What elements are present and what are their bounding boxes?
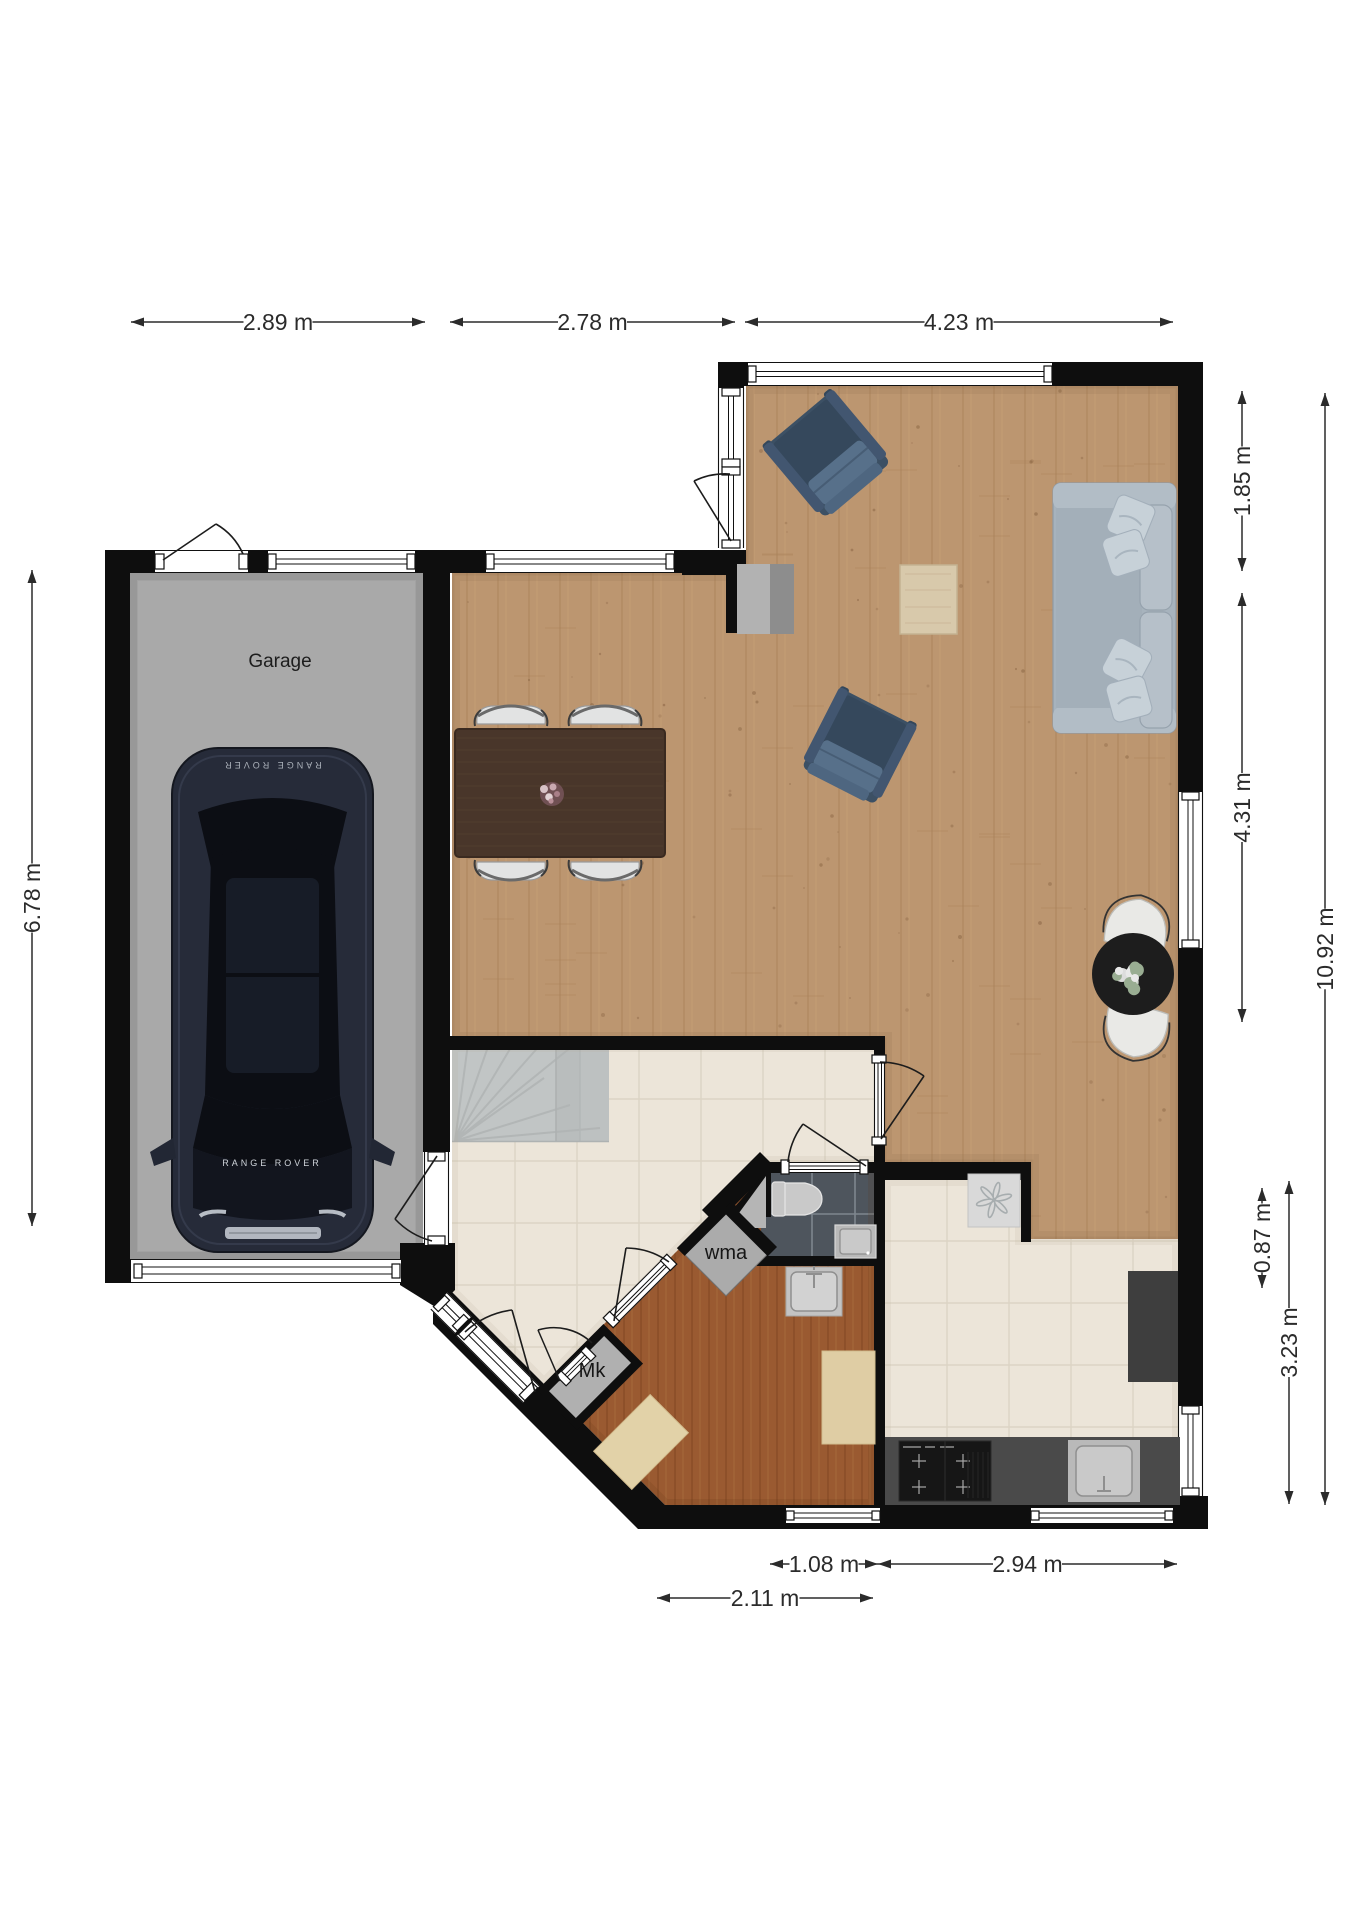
svg-text:RANGE ROVER: RANGE ROVER bbox=[222, 760, 322, 770]
svg-text:1.08 m: 1.08 m bbox=[789, 1551, 859, 1577]
svg-text:0.87 m: 0.87 m bbox=[1249, 1203, 1275, 1273]
svg-text:10.92 m: 10.92 m bbox=[1312, 907, 1338, 990]
svg-text:4.31 m: 4.31 m bbox=[1229, 772, 1255, 842]
svg-text:6.78 m: 6.78 m bbox=[19, 863, 45, 933]
svg-text:wma: wma bbox=[704, 1242, 748, 1264]
svg-text:3.23 m: 3.23 m bbox=[1276, 1307, 1302, 1377]
svg-text:1.85 m: 1.85 m bbox=[1229, 446, 1255, 516]
svg-text:Garage: Garage bbox=[248, 651, 311, 672]
svg-text:RANGE ROVER: RANGE ROVER bbox=[222, 1158, 322, 1168]
svg-text:4.23 m: 4.23 m bbox=[924, 309, 994, 335]
svg-text:2.94 m: 2.94 m bbox=[992, 1551, 1062, 1577]
svg-text:Mk: Mk bbox=[579, 1360, 607, 1382]
svg-text:2.78 m: 2.78 m bbox=[557, 309, 627, 335]
svg-text:2.11 m: 2.11 m bbox=[731, 1585, 800, 1611]
svg-text:2.89 m: 2.89 m bbox=[243, 309, 313, 335]
